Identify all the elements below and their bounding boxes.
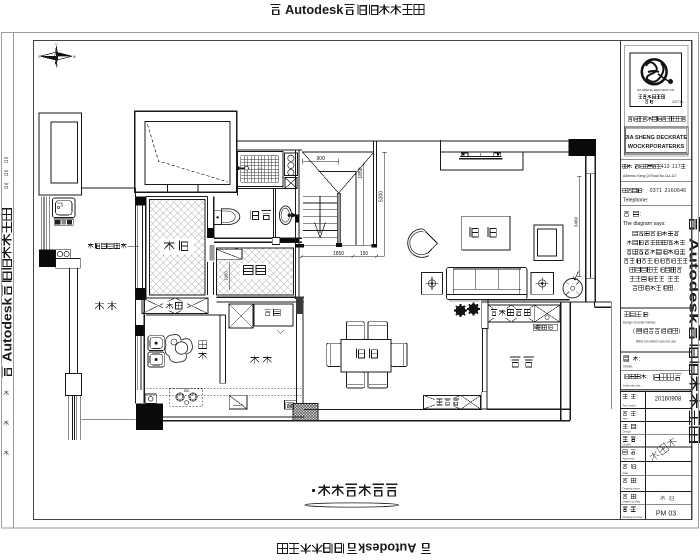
svg-text:Design to enter Dishes:: Design to enter Dishes:: [623, 321, 656, 325]
svg-text:Item.: Item.: [623, 417, 629, 421]
svg-text:Degree of dwg.: Degree of dwg.: [623, 500, 641, 504]
svg-text:Autodesk: Autodesk: [0, 297, 14, 362]
svg-text:1850: 1850: [358, 167, 364, 178]
svg-text:Owner.: Owner.: [623, 365, 633, 369]
svg-text:7: 7: [678, 164, 681, 170]
svg-text:Drawing number.: Drawing number.: [623, 515, 644, 519]
svg-text:Autodesk: Autodesk: [285, 2, 344, 17]
svg-text::: :: [636, 494, 637, 500]
svg-text:Drafter.: Drafter.: [623, 442, 632, 446]
svg-text:E: E: [39, 55, 41, 59]
svg-text::: :: [636, 394, 637, 400]
svg-text:Approved.: Approved.: [623, 457, 636, 461]
svg-text:1: 1: [659, 188, 662, 194]
svg-text::: :: [636, 424, 637, 430]
svg-text:3: 3: [667, 164, 670, 170]
svg-text:Blind not sketch can not use: Blind not sketch can not use: [636, 340, 676, 344]
svg-text:1850: 1850: [333, 251, 344, 257]
svg-text::: :: [636, 478, 637, 484]
svg-text:JIA SHENG DECORAT ON: JIA SHENG DECORAT ON: [637, 88, 674, 92]
svg-text::: :: [636, 437, 637, 443]
svg-text:PM 03: PM 03: [656, 511, 676, 518]
svg-text::: :: [636, 450, 637, 456]
svg-text:WOCKRPORATERKS: WOCKRPORATERKS: [628, 144, 685, 150]
svg-text::: :: [631, 164, 632, 170]
svg-text:900: 900: [317, 156, 326, 162]
svg-text:1000: 1000: [223, 271, 228, 281]
svg-text:20160908: 20160908: [655, 397, 682, 403]
svg-text:Telephone:: Telephone:: [623, 198, 648, 204]
svg-text::: :: [642, 188, 643, 194]
svg-text::: :: [636, 411, 637, 417]
svg-text:150: 150: [360, 251, 369, 257]
svg-text:Drawing name.: Drawing name.: [623, 487, 641, 491]
svg-text:Autodesk: Autodesk: [357, 541, 416, 556]
svg-text::: :: [636, 507, 637, 513]
svg-text:6: 6: [683, 188, 686, 194]
svg-text::: :: [636, 464, 637, 470]
svg-text:600: 600: [257, 167, 263, 171]
svg-text:Address: Keng Qi Road No.11a-1: Address: Keng Qi Road No.11a-117: [623, 174, 677, 178]
svg-text:Design.: Design.: [623, 430, 632, 434]
svg-text:3460: 3460: [573, 216, 578, 227]
svg-text:N: N: [55, 43, 57, 47]
svg-text:(: (: [633, 329, 635, 335]
svg-text:The diagram says:: The diagram says:: [623, 221, 666, 227]
svg-text:5300: 5300: [379, 191, 385, 202]
svg-text:W: W: [73, 55, 76, 59]
svg-text:Authority site...: Authority site...: [623, 384, 643, 388]
svg-text:JIA SHENG DECKRATE: JIA SHENG DECKRATE: [625, 135, 687, 141]
svg-text:Date.: Date.: [623, 471, 630, 475]
svg-text:650: 650: [184, 389, 190, 393]
svg-text:Part mader.: Part mader.: [623, 404, 637, 408]
svg-text:24771b: 24771b: [672, 100, 683, 104]
svg-text:): ): [679, 329, 681, 335]
